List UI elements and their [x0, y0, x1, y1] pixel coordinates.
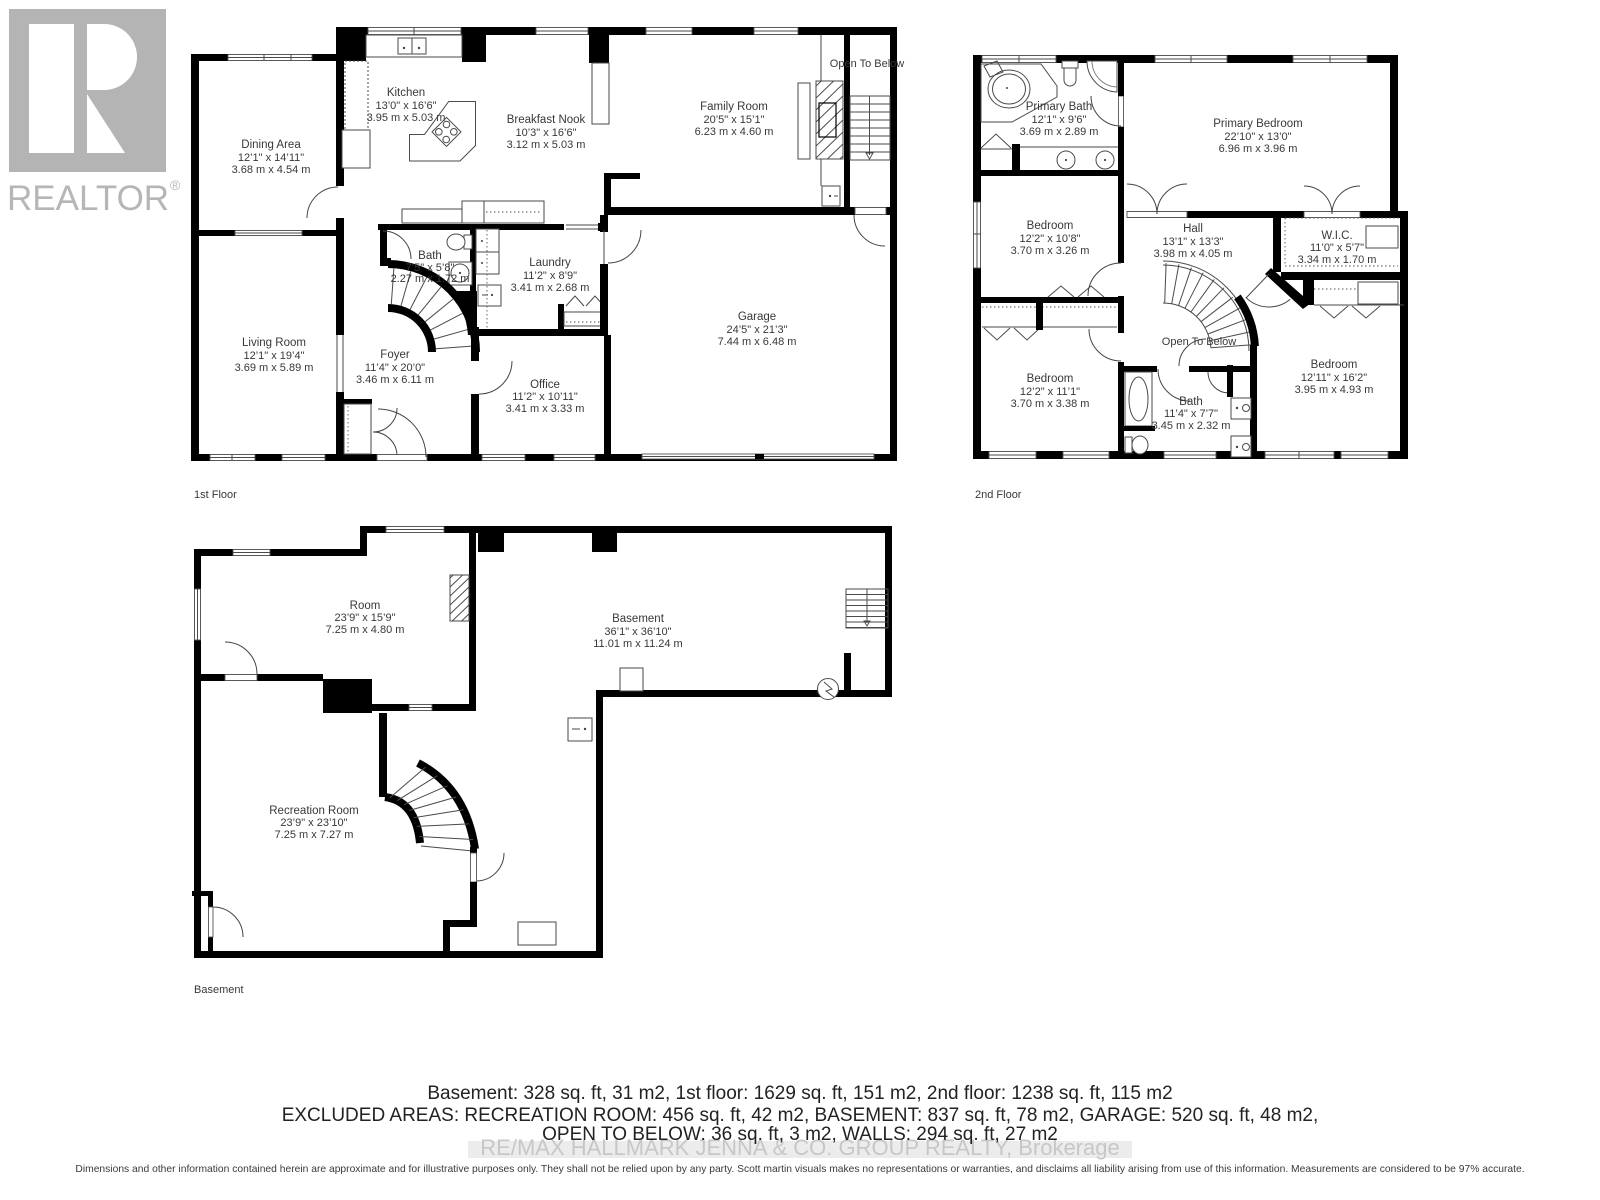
svg-text:23’9" x 15’9": 23’9" x 15’9" [334, 612, 395, 624]
svg-text:11’4" x 20’0": 11’4" x 20’0" [365, 362, 425, 374]
svg-text:7.44 m x 6.48 m: 7.44 m x 6.48 m [718, 336, 797, 348]
svg-text:Hall: Hall [1183, 223, 1203, 235]
svg-text:13’1" x 13’3": 13’1" x 13’3" [1162, 236, 1223, 248]
svg-text:12’1" x 9’6": 12’1" x 9’6" [1032, 114, 1087, 126]
svg-text:12’2" x 10’8": 12’2" x 10’8" [1019, 233, 1080, 245]
svg-text:3.95 m x 5.03 m: 3.95 m x 5.03 m [367, 112, 446, 124]
svg-text:3.41 m x 2.68 m: 3.41 m x 2.68 m [511, 282, 590, 294]
svg-text:Living Room: Living Room [242, 337, 306, 349]
svg-text:Open To Below: Open To Below [830, 58, 904, 70]
svg-text:Garage: Garage [738, 311, 776, 323]
svg-text:Bedroom: Bedroom [1027, 220, 1074, 232]
svg-text:3.70 m x 3.26 m: 3.70 m x 3.26 m [1011, 245, 1090, 257]
svg-text:11’2" x 10’11": 11’2" x 10’11" [512, 391, 578, 403]
svg-text:OPEN TO BELOW: 36 sq. ft, 3 m2: OPEN TO BELOW: 36 sq. ft, 3 m2, WALLS: 2… [542, 1124, 1058, 1145]
svg-text:Family Room: Family Room [700, 101, 768, 113]
svg-text:®: ® [170, 177, 181, 193]
svg-text:Breakfast Nook: Breakfast Nook [507, 114, 586, 126]
svg-text:Office: Office [530, 379, 560, 391]
svg-text:Basement: 328 sq. ft, 31 m2, 1: Basement: 328 sq. ft, 31 m2, 1st floor: … [427, 1083, 1172, 1104]
svg-text:Bath: Bath [418, 250, 442, 262]
svg-text:11’2" x 8’9": 11’2" x 8’9" [523, 270, 577, 282]
svg-text:10’3" x 16’6": 10’3" x 16’6" [515, 127, 576, 139]
svg-text:3.69 m x 2.89 m: 3.69 m x 2.89 m [1020, 126, 1099, 138]
svg-text:2nd Floor: 2nd Floor [975, 489, 1022, 501]
svg-text:3.95 m x 4.93 m: 3.95 m x 4.93 m [1295, 384, 1374, 396]
svg-text:Foyer: Foyer [380, 349, 410, 361]
svg-text:Dining Area: Dining Area [241, 139, 301, 151]
svg-text:3.70 m x 3.38 m: 3.70 m x 3.38 m [1011, 398, 1090, 410]
svg-text:7.25 m x 4.80 m: 7.25 m x 4.80 m [326, 624, 405, 636]
svg-text:22’10" x 13’0": 22’10" x 13’0" [1224, 131, 1291, 143]
svg-text:3.12 m x 5.03 m: 3.12 m x 5.03 m [507, 139, 586, 151]
svg-text:3.41 m x 3.33 m: 3.41 m x 3.33 m [506, 403, 585, 415]
svg-text:6.23 m x 4.60 m: 6.23 m x 4.60 m [695, 126, 774, 138]
svg-text:Primary Bedroom: Primary Bedroom [1213, 118, 1302, 130]
svg-text:1st Floor: 1st Floor [194, 489, 237, 501]
svg-text:Primary Bath: Primary Bath [1026, 101, 1092, 113]
svg-text:Open To Below: Open To Below [1162, 336, 1236, 348]
svg-text:2.27 m x 1.72 m: 2.27 m x 1.72 m [391, 273, 470, 285]
svg-text:Kitchen: Kitchen [387, 87, 425, 99]
svg-text:Basement: Basement [612, 613, 665, 625]
svg-text:Bedroom: Bedroom [1027, 373, 1074, 385]
svg-text:36’1" x 36’10": 36’1" x 36’10" [604, 626, 671, 638]
svg-text:W.I.C.: W.I.C. [1321, 230, 1352, 242]
svg-text:24’5" x 21’3": 24’5" x 21’3" [726, 324, 787, 336]
svg-text:Dimensions and other informati: Dimensions and other information contain… [75, 1164, 1524, 1175]
svg-text:Laundry: Laundry [529, 257, 571, 269]
svg-text:20’5" x 15’1": 20’5" x 15’1" [703, 114, 764, 126]
svg-text:12’2" x 11’1": 12’2" x 11’1" [1020, 386, 1080, 398]
svg-text:11’0" x 5’7": 11’0" x 5’7" [1310, 242, 1364, 254]
svg-text:3.45 m x 2.32 m: 3.45 m x 2.32 m [1152, 420, 1231, 432]
svg-text:Bath: Bath [1179, 396, 1203, 408]
svg-text:Room: Room [350, 600, 381, 612]
svg-text:12’1" x 14’11": 12’1" x 14’11" [238, 152, 304, 164]
svg-text:EXCLUDED AREAS: RECREATION ROO: EXCLUDED AREAS: RECREATION ROOM: 456 sq.… [282, 1105, 1319, 1126]
svg-text:11.01 m x 11.24 m: 11.01 m x 11.24 m [593, 638, 682, 650]
svg-text:3.69 m x 5.89 m: 3.69 m x 5.89 m [235, 362, 314, 374]
svg-text:11’4" x 7’7": 11’4" x 7’7" [1164, 408, 1218, 420]
svg-text:REALTOR: REALTOR [7, 179, 169, 218]
svg-text:3.68 m x 4.54 m: 3.68 m x 4.54 m [232, 164, 311, 176]
svg-text:Bedroom: Bedroom [1311, 359, 1358, 371]
svg-text:7.25 m x 7.27 m: 7.25 m x 7.27 m [275, 829, 354, 841]
svg-text:23’9" x 23’10": 23’9" x 23’10" [280, 817, 347, 829]
svg-text:12’11" x 16’2": 12’11" x 16’2" [1301, 372, 1367, 384]
svg-text:6.96 m x 3.96 m: 6.96 m x 3.96 m [1219, 143, 1298, 155]
svg-text:12’1" x 19’4": 12’1" x 19’4" [243, 350, 304, 362]
svg-text:3.46 m x 6.11 m: 3.46 m x 6.11 m [356, 374, 434, 386]
svg-text:Basement: Basement [194, 984, 244, 996]
svg-text:3.34 m x 1.70 m: 3.34 m x 1.70 m [1298, 254, 1377, 266]
svg-text:13’0" x 16’6": 13’0" x 16’6" [375, 100, 436, 112]
svg-text:3.98 m x 4.05 m: 3.98 m x 4.05 m [1154, 248, 1233, 260]
svg-text:Recreation Room: Recreation Room [269, 805, 358, 817]
